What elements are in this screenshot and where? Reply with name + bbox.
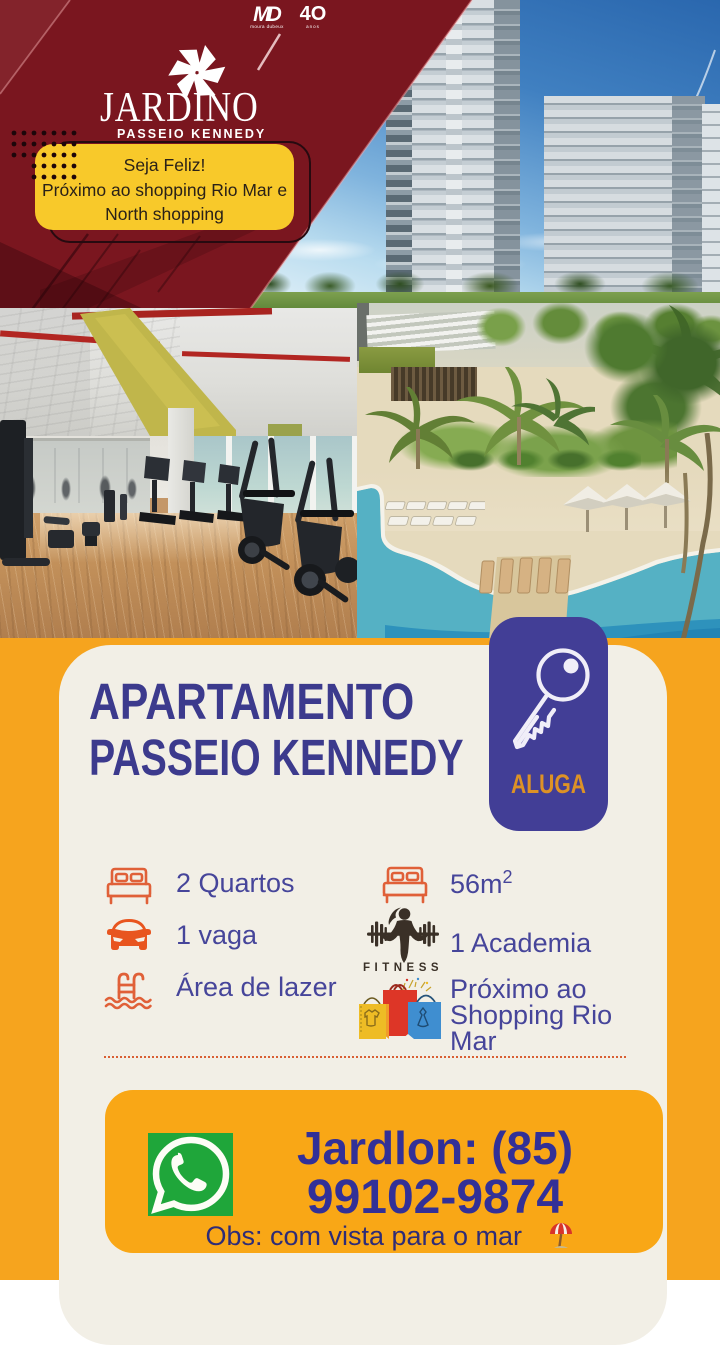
svg-text:FITNESS: FITNESS — [363, 962, 443, 974]
